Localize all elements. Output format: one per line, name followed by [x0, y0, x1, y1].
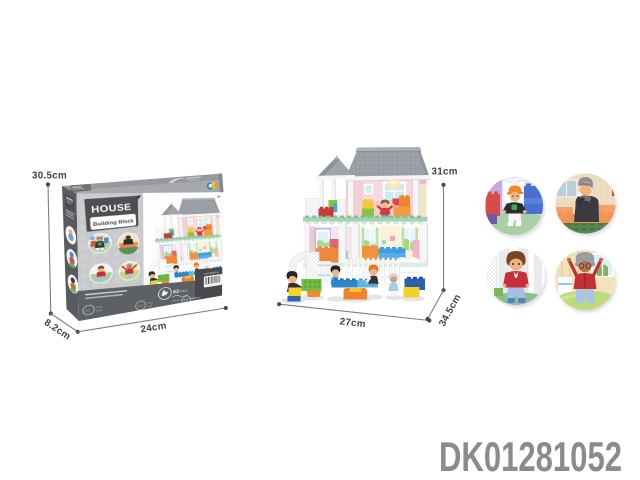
svg-text:DK01281052: DK01281052: [439, 433, 622, 480]
svg-text:8.2cm: 8.2cm: [42, 317, 72, 342]
svg-text:27cm: 27cm: [339, 316, 366, 330]
svg-text:30.5cm: 30.5cm: [32, 171, 67, 182]
svg-text:34.5cm: 34.5cm: [437, 292, 464, 328]
svg-text:24cm: 24cm: [140, 320, 168, 335]
svg-text:31cm: 31cm: [432, 167, 458, 178]
